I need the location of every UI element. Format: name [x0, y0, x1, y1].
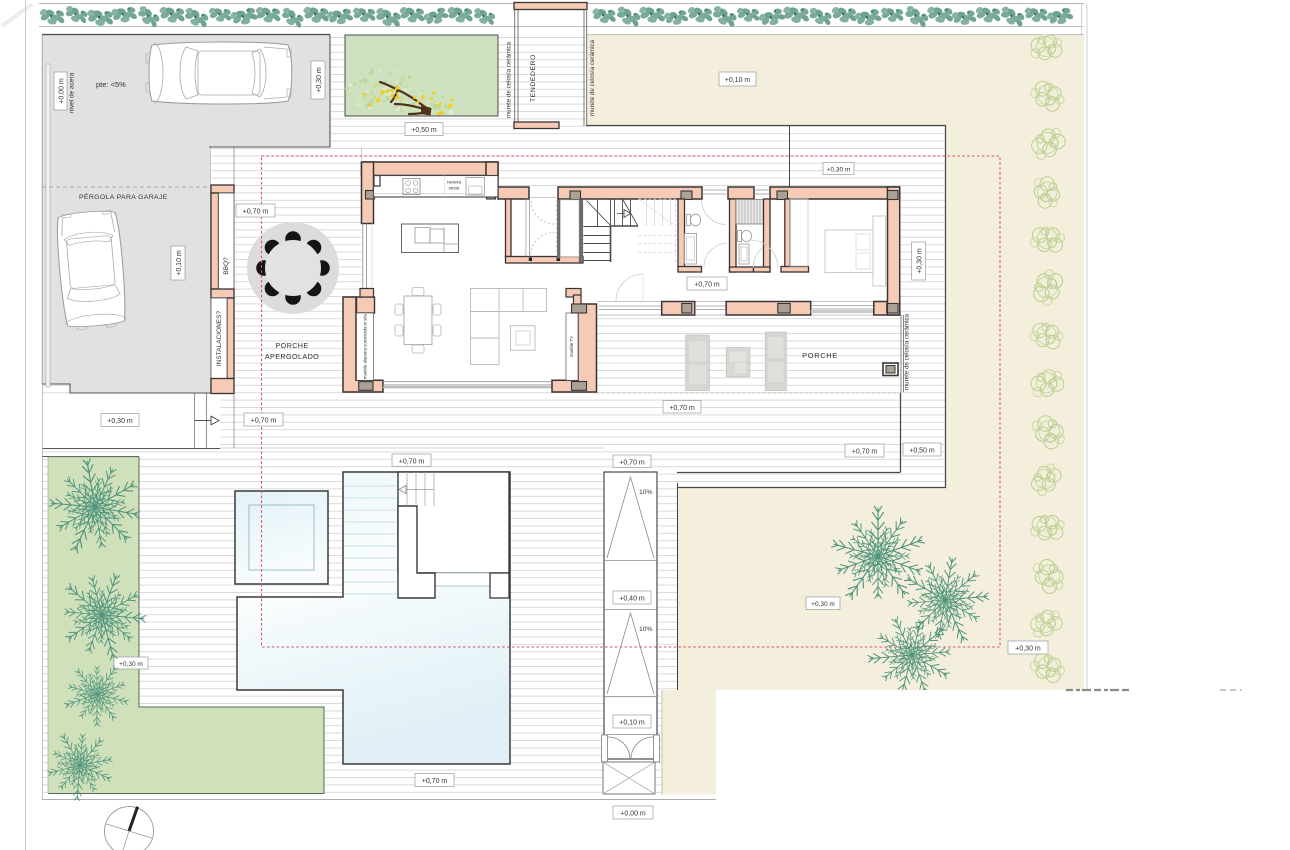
svg-text:10%: 10% [639, 489, 653, 496]
svg-text:+0,40 m: +0,40 m [619, 596, 645, 603]
svg-text:PÉRGOLA PARA GARAJE: PÉRGOLA PARA GARAJE [79, 192, 168, 201]
svg-text:+0,00 m: +0,00 m [620, 811, 646, 818]
svg-text:PORCHE: PORCHE [802, 351, 838, 360]
svg-text:+0,30 m: +0,30 m [107, 418, 133, 425]
svg-text:vinos: vinos [449, 186, 460, 191]
svg-text:+0,70 m: +0,70 m [399, 459, 425, 466]
svg-text:+0,70 m: +0,70 m [619, 460, 645, 467]
svg-text:+0,10 m: +0,10 m [619, 720, 645, 727]
svg-text:TENDEDERO: TENDEDERO [530, 54, 537, 102]
svg-text:+0,10 m: +0,10 m [725, 77, 751, 84]
svg-text:PORCHE: PORCHE [275, 341, 308, 350]
svg-text:nivel de acera: nivel de acera [69, 72, 76, 113]
svg-text:murete de celosía cerámica: murete de celosía cerámica [904, 313, 911, 390]
svg-text:+0,70 m: +0,70 m [243, 209, 269, 216]
svg-text:+0,30 m: +0,30 m [811, 601, 835, 608]
svg-text:murete de celosía cerámica: murete de celosía cerámica [506, 41, 513, 118]
svg-text:+0,30 m: +0,30 m [316, 67, 323, 93]
svg-text:+0,10 m: +0,10 m [176, 250, 183, 276]
svg-text:+0,70 m: +0,70 m [422, 778, 448, 785]
svg-text:BBQ?: BBQ? [223, 257, 230, 275]
svg-text:mueble TV: mueble TV [569, 336, 574, 357]
svg-text:pte: <5%: pte: <5% [96, 80, 126, 89]
svg-text:+0,00 m: +0,00 m [59, 78, 66, 104]
svg-text:+0,50 m: +0,50 m [909, 448, 935, 455]
svg-text:+0,30 m: +0,30 m [827, 167, 851, 174]
svg-text:+0,70 m: +0,70 m [251, 418, 277, 425]
svg-text:+0,70 m: +0,70 m [694, 282, 720, 289]
svg-text:INSTALACIONES?: INSTALACIONES? [216, 311, 223, 367]
svg-text:nevera: nevera [447, 180, 461, 185]
svg-text:APERGOLADO: APERGOLADO [265, 352, 319, 361]
svg-text:10%: 10% [639, 626, 653, 633]
svg-text:+0,30 m: +0,30 m [1015, 646, 1041, 653]
svg-text:+0,70 m: +0,70 m [669, 405, 695, 412]
svg-text:+0,30 m: +0,30 m [917, 248, 924, 274]
svg-text:murete de celosía cerámica: murete de celosía cerámica [589, 39, 596, 116]
svg-text:+0,70 m: +0,70 m [852, 449, 878, 456]
svg-text:+0,50 m: +0,50 m [411, 127, 437, 134]
svg-text:mueble alacena construida in s: mueble alacena construida in situ [363, 313, 368, 379]
svg-text:+0,30 m: +0,30 m [119, 661, 143, 668]
